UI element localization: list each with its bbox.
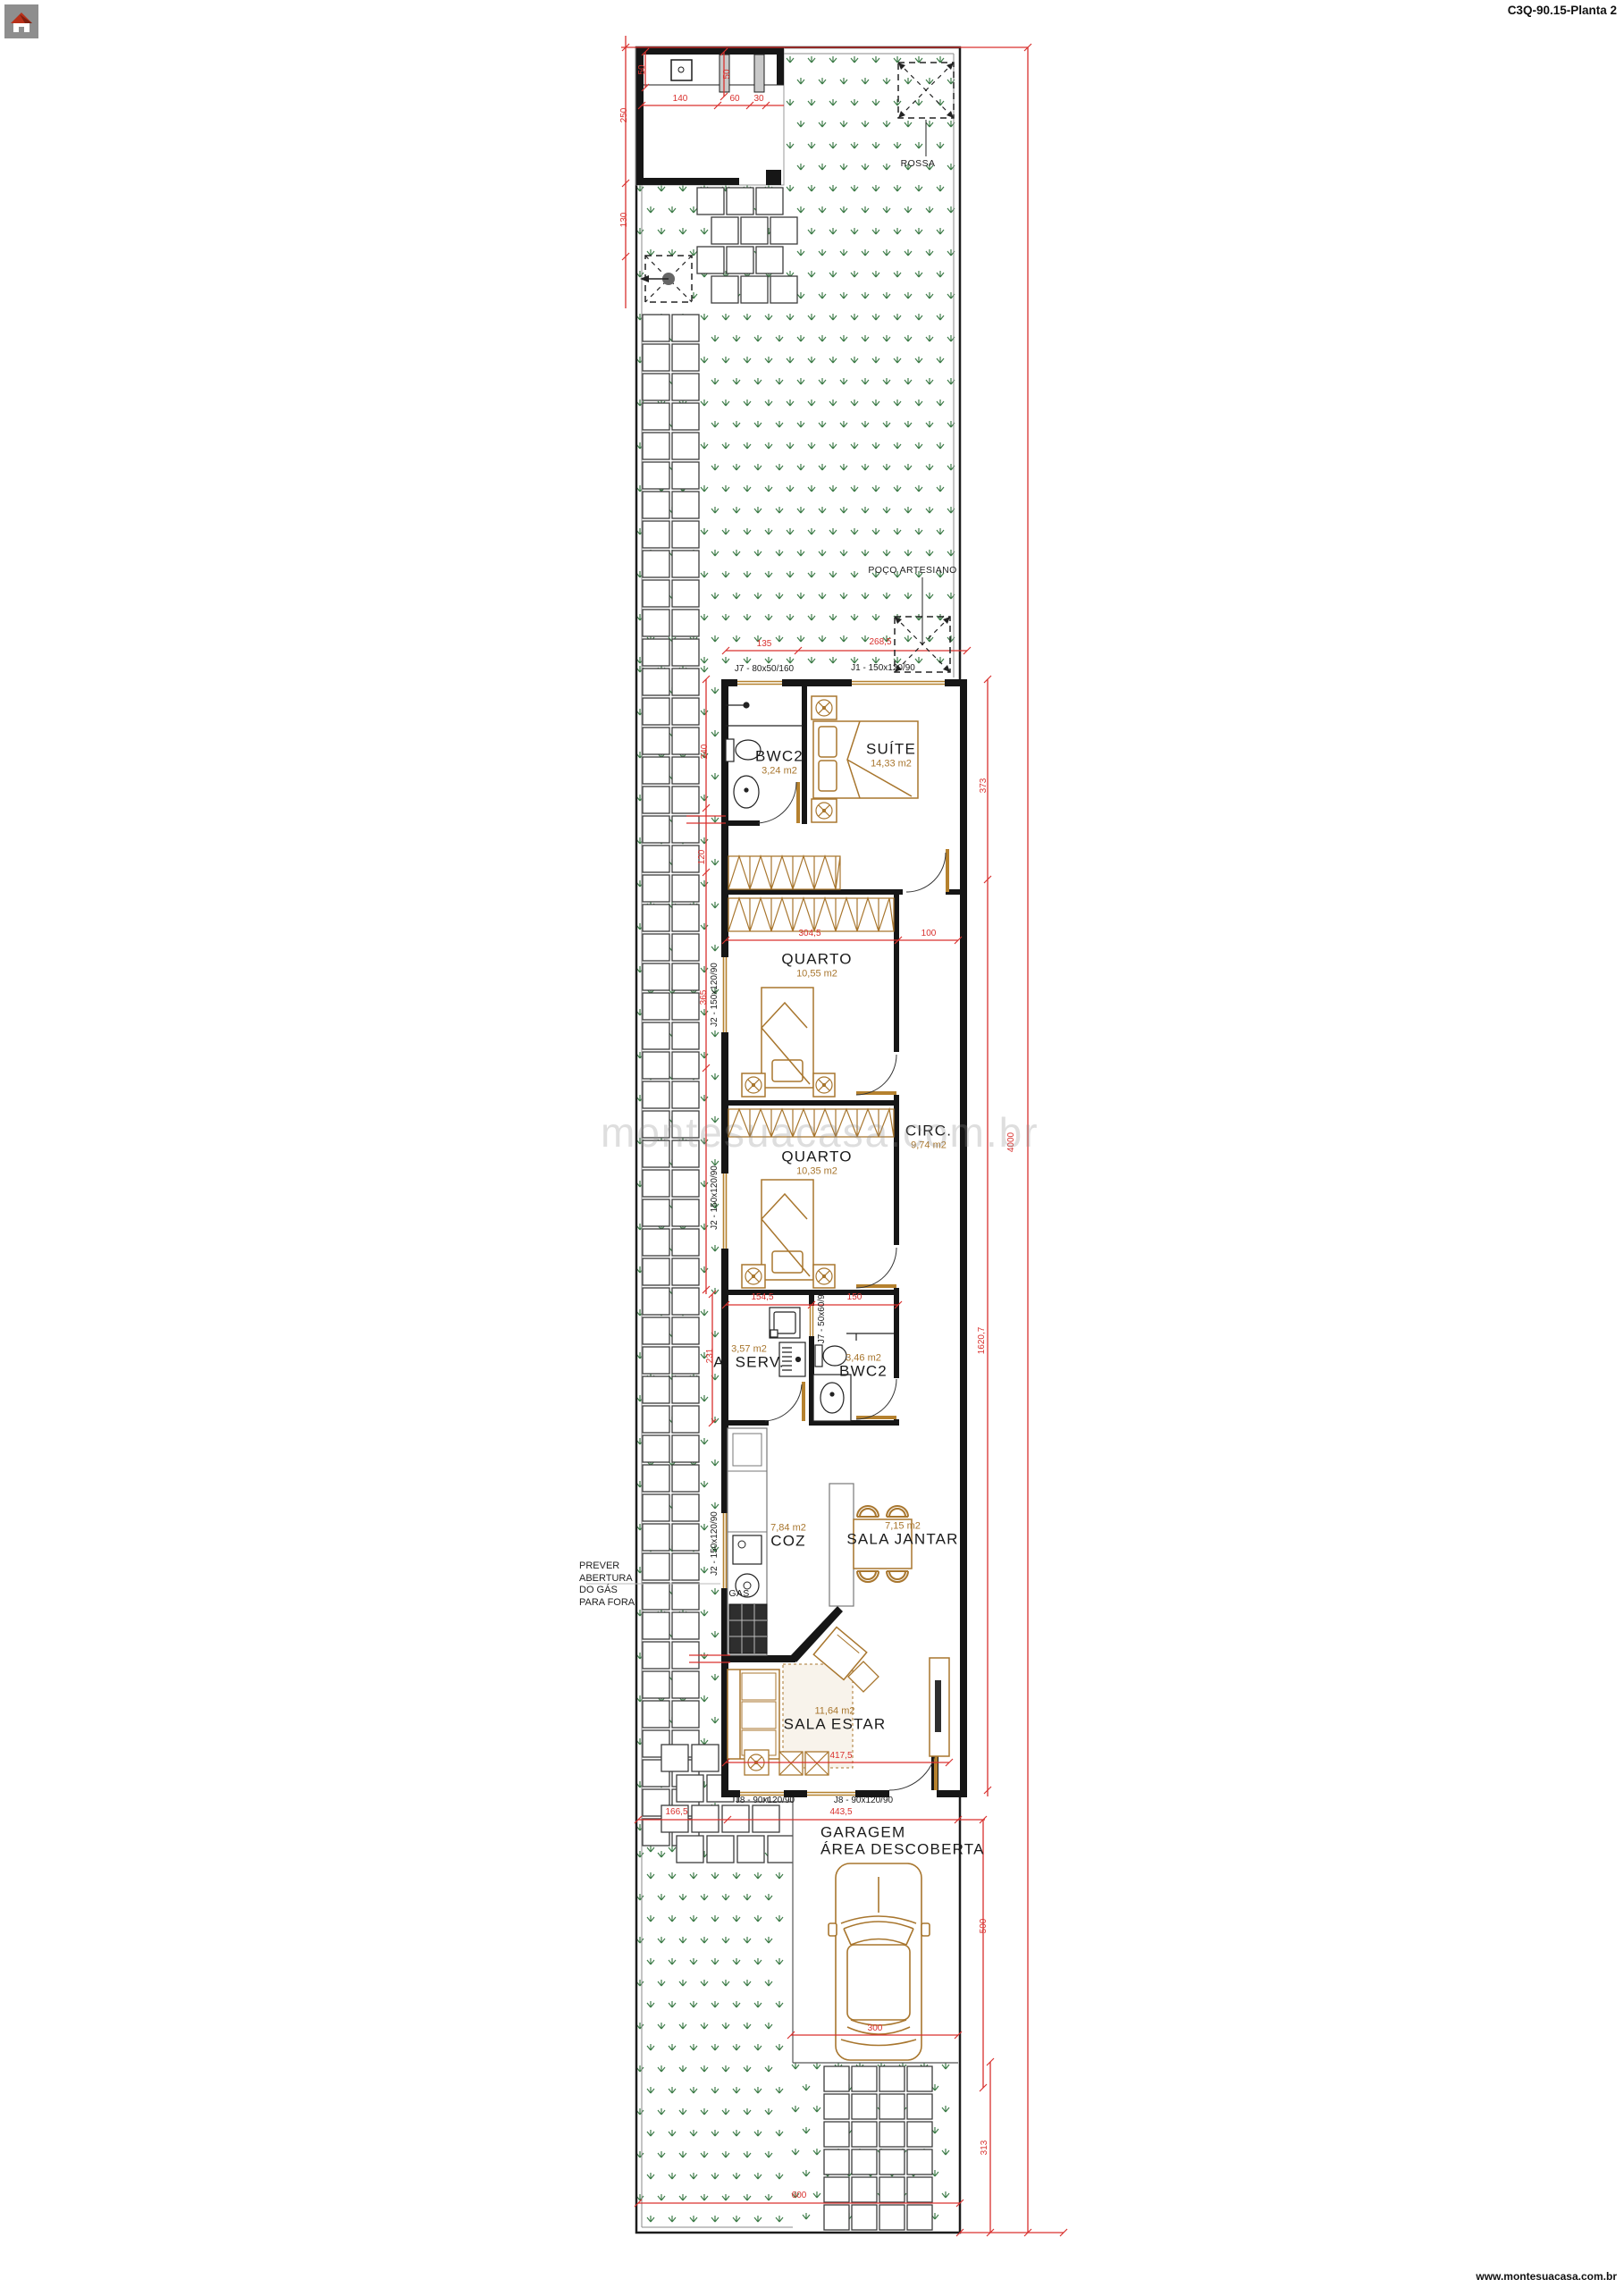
service-structure — [636, 47, 784, 185]
sheet-title: C3Q-90.15-Planta 2 — [1508, 4, 1617, 17]
pillar — [754, 55, 764, 92]
gas-note-line: ABERTURA — [579, 1573, 635, 1586]
gas-vent-note: PREVERABERTURADO GÁSPARA FORA — [579, 1560, 635, 1609]
website-url: www.montesuacasa.com.br — [1476, 2270, 1617, 2283]
gas-note-line: PREVER — [579, 1560, 635, 1573]
sofa — [728, 1670, 779, 1759]
plan-sheet: 25013050501406030135268,53731620,7400024… — [0, 0, 1624, 2288]
watermark: montesuacasa.com.br — [601, 1108, 1039, 1157]
gas-note-line: PARA FORA — [579, 1597, 635, 1610]
gas-note-line: DO GÁS — [579, 1585, 635, 1597]
car-top-view — [829, 1863, 930, 2060]
sink-icon — [671, 60, 692, 80]
montesuacasa-logo-icon[interactable] — [4, 4, 38, 38]
tv-icon — [935, 1680, 941, 1732]
